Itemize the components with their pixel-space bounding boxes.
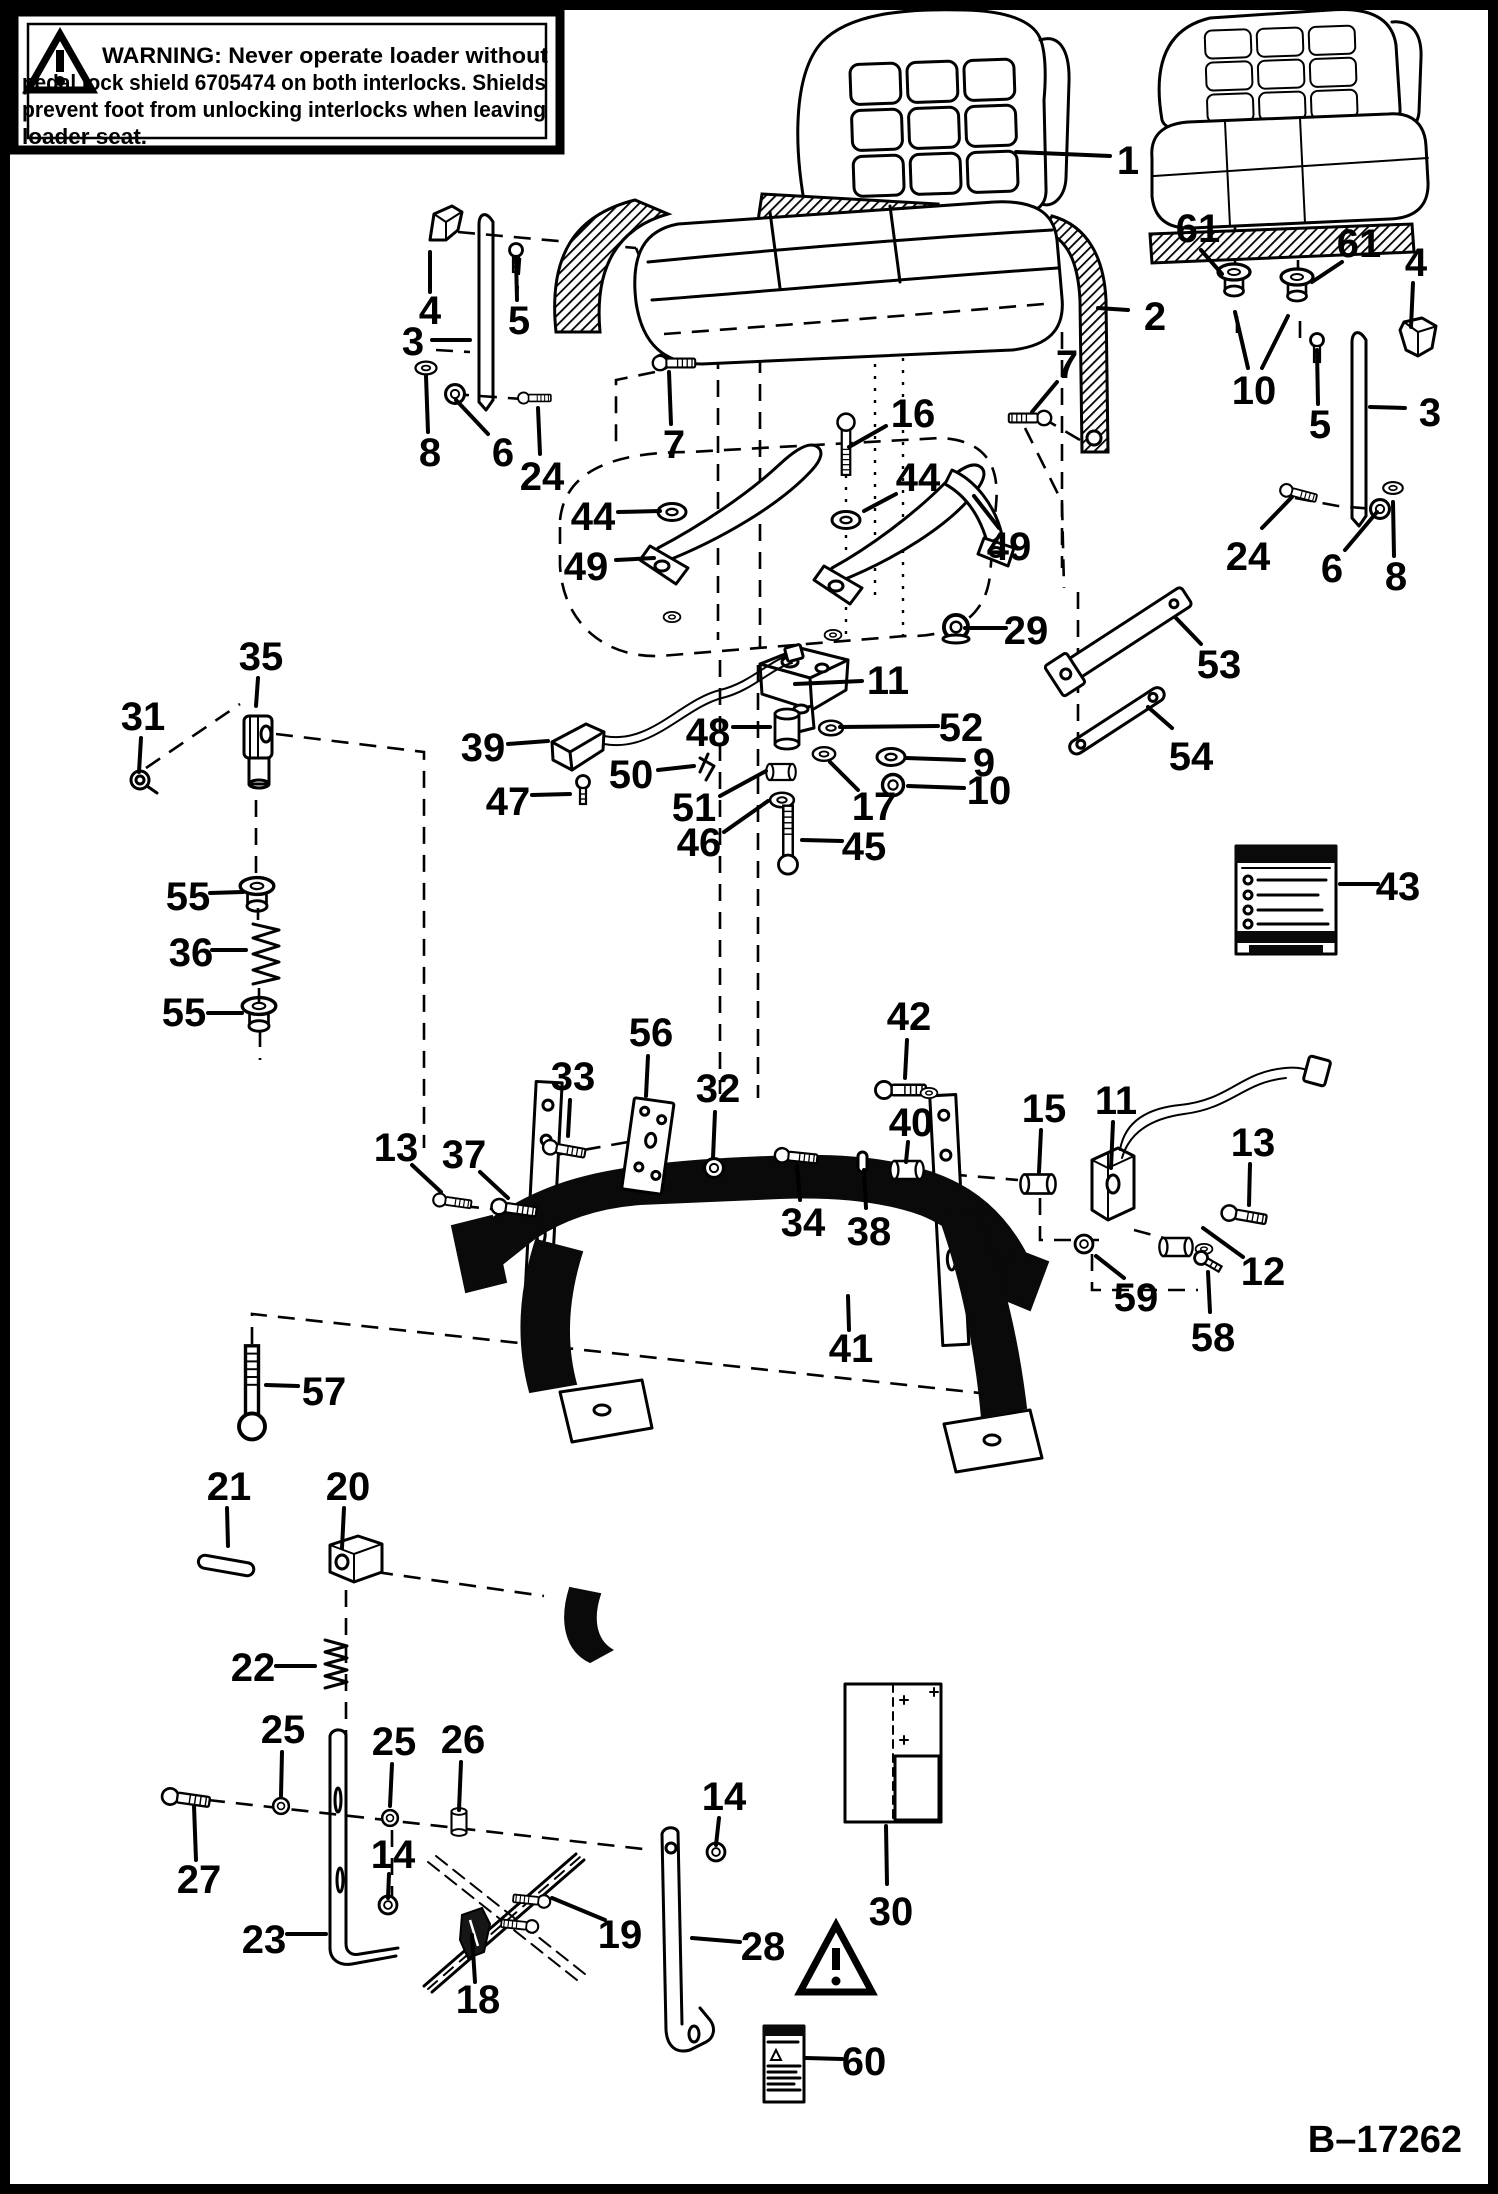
bolt-42 [875,1081,925,1098]
part-number-4: 4 [1405,241,1428,285]
part-number-33: 33 [551,1055,596,1099]
leader-line-42 [905,1040,907,1078]
leader-line-10 [1262,316,1288,368]
pan-grommet [825,630,842,640]
part-number-19: 19 [598,1913,643,1957]
document-30 [845,1684,941,1822]
part-number-7: 7 [663,423,685,467]
part-number-43: 43 [1376,865,1421,909]
latch-35 [244,716,272,788]
callout-part-6: 6 [456,400,514,475]
warning-text-line-4: loader seat. [22,124,147,149]
callout-part-14: 14 [371,1833,416,1898]
leader-line-35 [256,678,258,706]
leader-line-20 [342,1508,344,1548]
callout-part-7: 7 [1032,343,1078,412]
callout-part-35: 35 [239,635,284,706]
leader-line-58 [1208,1272,1210,1312]
callout-part-13: 13 [1231,1121,1276,1205]
seat-back [798,10,1069,216]
callout-part-19: 19 [552,1898,642,1957]
callout-part-2: 2 [1098,295,1166,339]
callout-part-26: 26 [441,1718,486,1810]
warning-text-line-3: prevent foot from unlocking interlocks w… [22,97,546,122]
nut-59 [1075,1235,1093,1253]
exploded-parts-diagram: 1234567824444916761614105324684449295354… [0,0,1498,2194]
part-number-8: 8 [1385,555,1407,599]
leader-line-4 [1411,283,1413,327]
part-number-36: 36 [169,931,214,975]
part-number-11: 11 [1095,1079,1137,1123]
part-number-59: 59 [1114,1276,1159,1320]
callout-part-12: 12 [1203,1228,1285,1294]
leader-line-41 [848,1296,849,1330]
bolt-13-right [1220,1204,1267,1227]
part-number-55: 55 [162,991,207,1035]
spacer-12 [1159,1238,1192,1256]
washer-17 [813,747,835,761]
part-number-14: 14 [702,1775,747,1819]
callout-part-30: 30 [869,1826,914,1934]
leader-line-14 [716,1818,719,1845]
callout-part-53: 53 [1176,618,1241,687]
seat-rails [1044,580,1196,756]
part-number-44: 44 [896,456,941,500]
part-number-58: 58 [1191,1316,1236,1360]
part-number-21: 21 [207,1465,252,1509]
part-number-25: 25 [372,1720,417,1764]
washer-8-right [1383,482,1403,494]
part-number-48: 48 [686,711,731,755]
part-number-34: 34 [781,1201,826,1245]
part-number-24: 24 [1226,535,1271,579]
leader-line-32 [713,1112,715,1158]
nut-29-flange [943,635,969,643]
leader-line-10 [1235,312,1248,368]
warning-text-line-2: pedal lock shield 6705474 on both interl… [22,70,546,95]
strap-3-left [479,215,493,410]
leader-line-56 [646,1056,648,1096]
warning-box: WARNING: Never operate loader without pe… [14,12,560,150]
part-number-56: 56 [629,1011,674,1055]
part-number-25: 25 [261,1708,306,1752]
spacer-48 [775,709,799,749]
part-number-13: 13 [374,1126,419,1170]
callout-layer: 1234567824444916761614105324684449295354… [121,139,1441,2084]
part-number-35: 35 [239,635,284,679]
part-number-8: 8 [419,431,441,475]
part-number-49: 49 [564,545,609,589]
part-number-15: 15 [1022,1087,1067,1131]
callout-part-45: 45 [802,825,886,869]
bolt-27 [161,1787,210,1810]
callout-part-52: 52 [840,706,983,750]
leader-line-5 [516,258,517,300]
callout-part-13: 13 [374,1126,441,1192]
callout-part-49: 49 [564,545,654,589]
callout-part-40: 40 [889,1101,934,1162]
decal-60 [764,2026,804,2102]
leader-line-13 [1249,1164,1250,1205]
part-number-23: 23 [242,1918,287,1962]
warning-text-line-1: WARNING: Never operate loader without [102,43,549,68]
parts-diagram-page: 1234567824444916761614105324684449295354… [0,0,1498,2194]
block-20 [330,1536,382,1582]
part-number-41: 41 [829,1327,874,1371]
callout-part-15: 15 [1022,1087,1067,1172]
part-number-20: 20 [326,1465,371,1509]
small-seat [1150,9,1428,301]
leader-line-15 [1039,1130,1041,1172]
callout-part-59: 59 [1096,1256,1158,1320]
part-number-54: 54 [1169,735,1214,779]
callout-part-55: 55 [166,875,243,919]
callout-part-41: 41 [829,1296,874,1371]
leader-line-50 [658,766,694,770]
leader-line-25 [281,1752,282,1796]
callout-part-32: 32 [696,1067,741,1158]
callout-part-25: 25 [261,1708,306,1796]
callout-part-4: 4 [1405,241,1428,327]
part-number-47: 47 [486,780,531,824]
leader-line-10 [908,786,964,788]
leader-line-52 [840,726,938,727]
part-number-16: 16 [891,392,936,436]
part-number-55: 55 [166,875,211,919]
callout-part-43: 43 [1340,865,1420,909]
part-number-6: 6 [1321,547,1343,591]
leader-line-25 [390,1764,392,1806]
part-number-31: 31 [121,695,166,739]
callout-part-29: 29 [965,609,1048,653]
leader-line-47 [532,794,570,795]
leader-line-45 [802,840,842,841]
part-number-53: 53 [1197,643,1242,687]
leader-line-33 [568,1100,570,1136]
part-number-32: 32 [696,1067,741,1111]
part-number-38: 38 [847,1210,892,1254]
leader-line-38 [864,1170,866,1208]
part-number-2: 2 [1144,295,1166,339]
warning-triangle-symbol [800,1925,872,1992]
callout-part-4: 4 [419,252,442,333]
leader-line-5 [1317,350,1318,404]
leader-line-8 [426,376,428,432]
part-number-61: 61 [1337,222,1382,266]
bottom-linkage [161,1536,725,2051]
leader-line-60 [806,2058,842,2059]
bolt-13-left [432,1193,472,1211]
leader-line-6 [1345,512,1377,550]
leader-line-55 [210,892,243,893]
callout-part-55: 55 [162,991,242,1035]
callout-part-22: 22 [231,1646,315,1690]
callout-part-39: 39 [461,726,548,770]
part-number-28: 28 [741,1925,786,1969]
callout-part-10: 10 [1232,312,1288,413]
part-number-29: 29 [1004,609,1049,653]
bolt-7-left [653,356,695,370]
leader-line-31 [139,738,141,772]
bolt-24-right [1279,483,1318,505]
part-number-45: 45 [842,825,887,869]
part-number-5: 5 [508,299,530,343]
grommet-61 [1281,269,1313,301]
bushing-51 [766,764,796,780]
leader-line-44 [864,494,896,511]
grommet-55-upper [240,878,274,912]
screw-47 [577,776,590,805]
callout-part-5: 5 [1309,350,1331,447]
bolt-57 [239,1346,265,1440]
part-number-17: 17 [852,785,897,829]
bolt-19-b [501,1917,539,1933]
leader-line-14 [388,1874,389,1898]
bushing-15 [1020,1175,1055,1194]
bushing-26 [452,1808,467,1836]
callout-part-17: 17 [830,762,896,829]
callout-part-20: 20 [326,1465,371,1548]
callout-part-21: 21 [207,1465,252,1546]
leader-line-59 [1096,1256,1124,1278]
leader-line-40 [906,1142,908,1162]
rail-53 [1044,580,1196,696]
strap-3-right [1352,333,1366,526]
part-number-14: 14 [371,1833,416,1877]
part-number-11: 11 [867,659,909,703]
callout-part-6: 6 [1321,512,1377,591]
rail-54 [1067,685,1167,757]
callout-part-54: 54 [1148,707,1214,779]
clip-50 [700,754,714,780]
part-number-60: 60 [842,2040,887,2084]
callout-part-24: 24 [520,408,565,499]
part-number-22: 22 [231,1646,276,1690]
part-number-42: 42 [887,995,932,1039]
part-number-10: 10 [967,769,1012,813]
grommet-55-lower [242,998,276,1032]
part-number-49: 49 [987,525,1032,569]
frame-hole [1087,431,1101,445]
part-number-37: 37 [442,1133,487,1177]
nut-25-left [273,1798,289,1814]
part-number-5: 5 [1309,403,1331,447]
switch-connector [1303,1056,1331,1087]
part-number-30: 30 [869,1890,914,1934]
roll-bar-41 [452,1156,1048,1662]
nut-25-mid [382,1810,398,1826]
callout-part-37: 37 [442,1133,508,1198]
callout-part-47: 47 [486,780,570,824]
leader-line-49 [616,558,654,560]
figure-id: B–17262 [1308,2119,1462,2161]
leader-line-30 [886,1826,887,1884]
connector [784,644,803,662]
leader-line-3 [1370,407,1405,408]
callout-part-10: 10 [908,769,1011,813]
callout-part-8: 8 [1385,502,1407,599]
part-number-26: 26 [441,1718,486,1762]
callout-part-28: 28 [692,1925,785,1969]
washer-44-left [658,504,686,521]
spring-22 [325,1640,347,1688]
callout-part-36: 36 [169,931,246,975]
callout-part-25: 25 [372,1720,417,1806]
leader-line-54 [1148,707,1172,728]
pin-21 [197,1554,254,1577]
callout-part-3: 3 [1370,391,1441,435]
right-mount-group [1279,318,1436,526]
callout-part-56: 56 [629,1011,674,1096]
part-number-6: 6 [492,431,514,475]
part-number-1: 1 [1117,139,1139,183]
washer-42 [921,1088,938,1098]
latch-hook [565,1588,612,1662]
callout-part-7: 7 [663,372,685,467]
grommet-61 [1218,264,1250,296]
leader-line-28 [692,1938,740,1942]
leader-line-57 [266,1385,298,1386]
part-number-18: 18 [456,1978,501,2022]
leader-line-2 [1098,308,1128,310]
callout-part-27: 27 [177,1806,222,1902]
part-number-61: 61 [1176,207,1221,251]
leader-line-24 [1262,497,1292,528]
nut-32 [705,1159,724,1178]
washer-44-right [832,512,860,529]
leader-line-26 [459,1762,461,1810]
callout-part-60: 60 [806,2040,886,2084]
part-number-46: 46 [677,821,722,865]
leader-line-24 [538,408,540,454]
leader-line-53 [1176,618,1201,644]
screw-24-left [518,392,551,403]
leader-line-9 [906,758,964,760]
part-number-4: 4 [419,289,442,333]
part-number-57: 57 [302,1370,347,1414]
part-number-12: 12 [1241,1250,1286,1294]
callout-part-8: 8 [419,376,441,475]
part-number-39: 39 [461,726,506,770]
bolt-45 [779,806,798,874]
leader-line-11 [1111,1122,1113,1168]
part-number-50: 50 [609,753,654,797]
leader-line-8 [1393,502,1394,556]
part-number-3: 3 [1419,391,1441,435]
washer-9 [877,749,905,766]
leader-line-27 [194,1806,196,1860]
part-number-24: 24 [520,455,565,499]
callout-part-58: 58 [1191,1272,1236,1360]
support-straps [640,445,1014,604]
leader-line-21 [227,1508,228,1546]
decal-43 [1236,846,1336,954]
switch-wire [1120,1068,1318,1158]
callout-part-44: 44 [571,495,660,539]
leader-line-46 [724,801,768,832]
callout-part-57: 57 [266,1370,346,1414]
callout-part-61: 61 [1176,207,1222,274]
part-number-13: 13 [1231,1121,1276,1165]
leader-line-7 [1032,382,1057,412]
leader-line-7 [669,372,671,424]
callout-part-42: 42 [887,995,932,1078]
part-number-10: 10 [1232,369,1277,413]
part-number-27: 27 [177,1858,222,1902]
callout-part-14: 14 [702,1775,747,1845]
part-number-7: 7 [1056,343,1078,387]
leader-line-44 [618,511,660,512]
leader-line-39 [508,741,548,744]
spring-36 [253,924,279,984]
callout-part-24: 24 [1226,497,1292,579]
leader-line-16 [849,426,886,447]
bolt-7-right [1009,411,1051,425]
pan-grommet [664,612,681,622]
part-number-40: 40 [889,1101,934,1145]
callout-part-23: 23 [242,1918,326,1962]
part-number-44: 44 [571,495,616,539]
